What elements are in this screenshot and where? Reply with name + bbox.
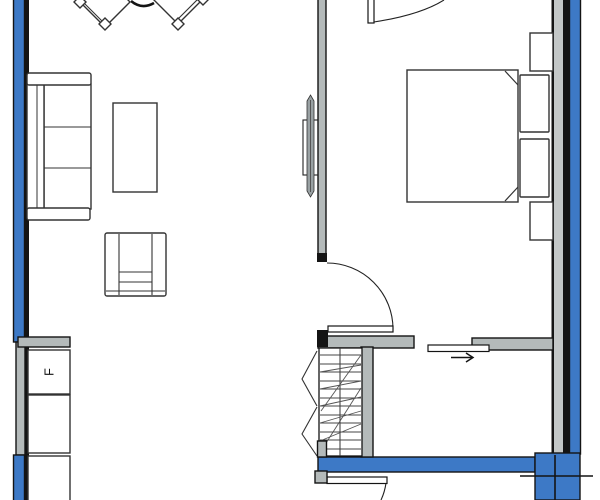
- sofa-armrest-bottom: [27, 208, 90, 220]
- hall-wall-left-segment: [318, 336, 414, 348]
- partition-wall-end-cap: [317, 253, 327, 262]
- bedroom-door-leaf: [368, 0, 374, 23]
- right-wall-liner: [554, 0, 563, 453]
- entry-door-hinge-block: [315, 471, 327, 483]
- stair-closet: [302, 348, 362, 457]
- sofa: [27, 73, 91, 220]
- floor-plan-drawing: F: [0, 0, 600, 500]
- dining-chair-right: [153, 0, 209, 30]
- bed: [407, 70, 549, 202]
- nightstand-top: [530, 33, 553, 71]
- pillow-bottom: [520, 139, 549, 197]
- entry-door-leaf: [327, 477, 387, 484]
- bottom-wall-blue: [318, 457, 535, 472]
- kitchen-unit-bottom: [28, 456, 70, 500]
- sofa-armrest-top: [27, 73, 91, 85]
- bedroom-door: [368, 0, 444, 23]
- exterior-wall-right: [552, 0, 581, 454]
- sliding-door: [428, 345, 489, 362]
- bifold-leaf-top: [302, 351, 317, 406]
- kitchen-counter: F: [28, 350, 70, 500]
- slide-direction-arrow-icon: [451, 353, 473, 362]
- dining-chair-left: [74, 0, 130, 30]
- bifold-door-leaves: [302, 351, 317, 456]
- entry-door: [315, 471, 387, 500]
- right-wall-blue: [570, 0, 581, 454]
- living-to-hall-door: [327, 263, 393, 332]
- left-wall-gray-section: [16, 342, 25, 455]
- wall-tv: [303, 95, 318, 197]
- pillow-top: [520, 75, 549, 132]
- living-hall-door-arc: [327, 263, 393, 329]
- kitchen-unit-middle: [28, 395, 70, 453]
- coffee-table: [113, 103, 157, 192]
- dining-table-edge: [131, 1, 154, 6]
- living-hall-door-leaf: [328, 326, 393, 332]
- floor-plan: F: [0, 0, 600, 500]
- dining-set: [74, 0, 209, 30]
- exterior-wall-bottom: [318, 457, 535, 472]
- partition-wall-body: [318, 0, 326, 258]
- door-post: [318, 441, 327, 457]
- left-wall-blue-upper: [14, 0, 25, 342]
- armchair: [105, 233, 166, 296]
- fridge-label: F: [42, 368, 57, 376]
- sliding-door-leaf: [428, 345, 489, 352]
- right-wall-core-line: [563, 0, 570, 453]
- bed-mattress: [407, 70, 518, 202]
- left-wall-blue-lower: [14, 455, 25, 500]
- kitchen-divider-stub: [18, 337, 70, 347]
- armchair-body: [105, 233, 166, 296]
- sofa-backrest: [27, 84, 44, 209]
- kitchen-divider-wall: [18, 337, 70, 347]
- entry-door-arc: [381, 483, 386, 500]
- hall-wall-corner-block: [317, 330, 328, 347]
- nightstand-bottom: [530, 202, 553, 240]
- hall-wall-stem: [361, 347, 373, 457]
- bifold-leaf-bottom: [302, 407, 317, 456]
- sofa-seat: [44, 84, 91, 209]
- bedroom-door-arc: [374, 0, 444, 22]
